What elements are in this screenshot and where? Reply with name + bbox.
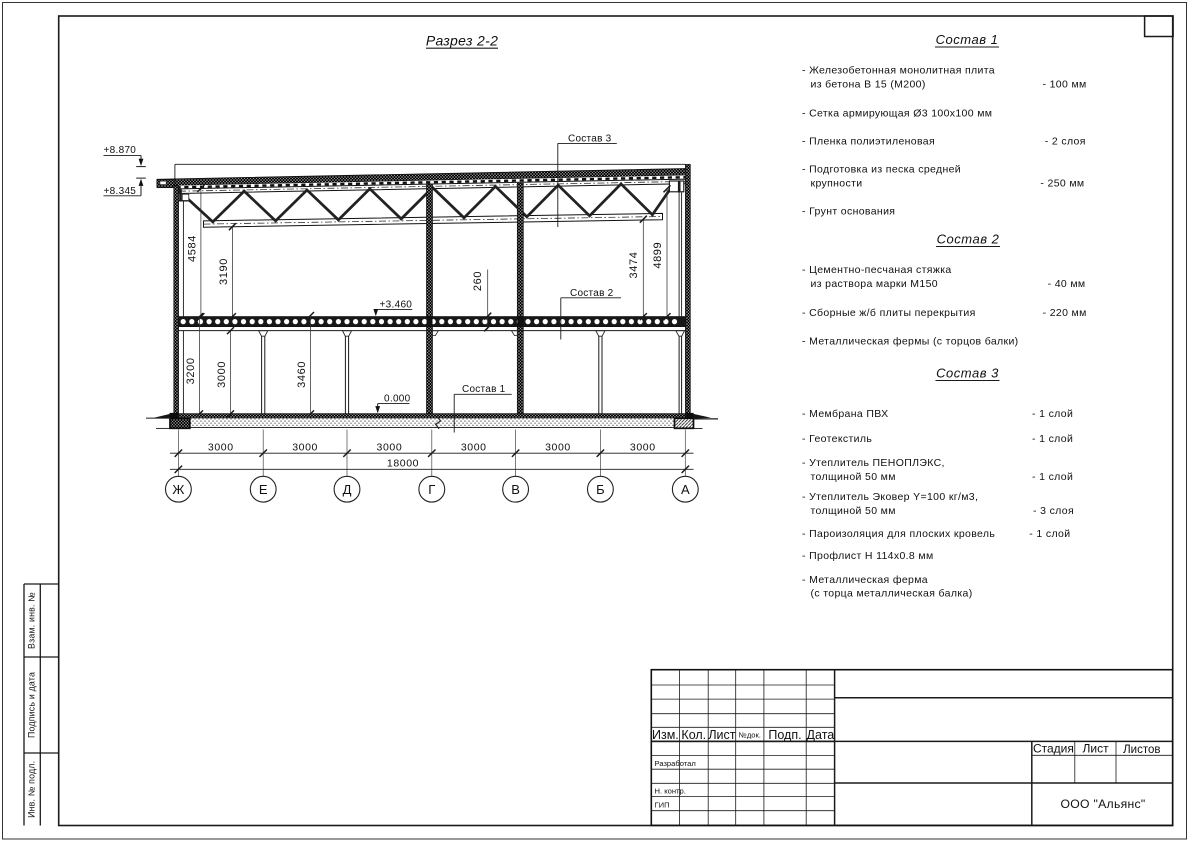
svg-text:18000: 18000 bbox=[387, 457, 419, 469]
svg-text:Подпись и дата: Подпись и дата bbox=[27, 672, 37, 738]
svg-text:- Металлическая фермы (с торцо: - Металлическая фермы (с торцов балки) bbox=[802, 336, 1019, 348]
svg-text:- Профлист Н 114х0.8 мм: - Профлист Н 114х0.8 мм bbox=[802, 550, 934, 562]
svg-text:3000: 3000 bbox=[377, 441, 403, 453]
svg-text:Состав 2: Состав 2 bbox=[937, 232, 1000, 247]
svg-text:- Цементно-песчаная стяжка: - Цементно-песчаная стяжка bbox=[802, 264, 952, 276]
svg-text:- Геотекстиль: - Геотекстиль bbox=[802, 433, 872, 445]
svg-text:- Грунт основания: - Грунт основания bbox=[802, 206, 895, 218]
svg-text:3474: 3474 bbox=[628, 252, 640, 279]
svg-text:- 1 слой: - 1 слой bbox=[1032, 408, 1073, 420]
svg-text:- Сетка армирующая Ø3 100х100: - Сетка армирующая Ø3 100х100 мм bbox=[802, 108, 992, 120]
svg-text:Взам. инв. №: Взам. инв. № bbox=[27, 592, 37, 649]
svg-text:толщиной 50 мм: толщиной 50 мм bbox=[811, 505, 896, 517]
svg-text:4899: 4899 bbox=[652, 242, 664, 269]
svg-text:- Мембрана ПВХ: - Мембрана ПВХ bbox=[802, 408, 888, 420]
svg-text:Разработал: Разработал bbox=[655, 759, 696, 768]
svg-text:- Утеплитель ПЕНОПЛЭКС,: - Утеплитель ПЕНОПЛЭКС, bbox=[802, 457, 945, 469]
svg-text:В: В bbox=[511, 482, 520, 497]
svg-text:+3.460: +3.460 bbox=[380, 300, 413, 311]
svg-text:Б: Б bbox=[596, 482, 605, 497]
svg-text:из бетона В 15 (М200): из бетона В 15 (М200) bbox=[811, 79, 926, 91]
svg-text:- 1 слой: - 1 слой bbox=[1029, 528, 1070, 540]
svg-text:Стадия: Стадия bbox=[1033, 742, 1074, 756]
svg-text:Лист: Лист bbox=[708, 728, 735, 742]
svg-text:Листов: Листов bbox=[1123, 744, 1160, 756]
svg-text:Кол.: Кол. bbox=[681, 728, 706, 742]
svg-text:ООО "Альянс": ООО "Альянс" bbox=[1060, 797, 1145, 811]
svg-text:(с торца металлическая балка): (с торца металлическая балка) bbox=[811, 588, 973, 600]
svg-text:- 100 мм: - 100 мм bbox=[1043, 79, 1087, 91]
svg-text:Состав 1: Состав 1 bbox=[462, 384, 506, 395]
svg-text:- Железобетонная монолитная п: - Железобетонная монолитная плита bbox=[802, 65, 995, 77]
svg-text:Изм.: Изм. bbox=[652, 728, 679, 742]
svg-text:- 2 слоя: - 2 слоя bbox=[1045, 135, 1086, 147]
svg-text:3000: 3000 bbox=[208, 441, 234, 453]
svg-text:3000: 3000 bbox=[461, 441, 487, 453]
svg-text:3000: 3000 bbox=[545, 441, 571, 453]
svg-text:3000: 3000 bbox=[216, 361, 228, 388]
svg-text:3200: 3200 bbox=[185, 357, 197, 384]
svg-text:Состав 3: Состав 3 bbox=[936, 366, 999, 381]
svg-text:- 3 слоя: - 3 слоя bbox=[1033, 505, 1074, 517]
svg-text:А: А bbox=[681, 482, 690, 497]
svg-text:- Сборные ж/б плиты перекрытия: - Сборные ж/б плиты перекрытия bbox=[802, 307, 976, 319]
svg-text:+8.870: +8.870 bbox=[104, 145, 137, 156]
svg-text:Состав 1: Состав 1 bbox=[936, 32, 999, 47]
svg-text:- Пароизоляция для плоских кро: - Пароизоляция для плоских кровель bbox=[802, 528, 995, 540]
svg-text:Инв. № подл.: Инв. № подл. bbox=[27, 761, 37, 818]
svg-text:0.000: 0.000 bbox=[384, 394, 411, 405]
svg-text:- Подготовка из песка средней: - Подготовка из песка средней bbox=[802, 164, 961, 176]
svg-text:- 1 слой: - 1 слой bbox=[1032, 433, 1073, 445]
svg-text:Лист: Лист bbox=[1083, 742, 1110, 756]
svg-text:из раствора марки М150: из раствора марки М150 bbox=[811, 278, 938, 290]
svg-text:- Металлическая ферма: - Металлическая ферма bbox=[802, 574, 928, 586]
svg-text:3000: 3000 bbox=[630, 441, 656, 453]
svg-text:260: 260 bbox=[472, 271, 484, 291]
svg-text:Н. контр.: Н. контр. bbox=[655, 787, 686, 796]
svg-text:3460: 3460 bbox=[296, 361, 308, 388]
svg-text:Е: Е bbox=[259, 482, 268, 497]
svg-text:- 1 слой: - 1 слой bbox=[1032, 471, 1073, 483]
svg-text:3000: 3000 bbox=[292, 441, 318, 453]
svg-text:Подп.: Подп. bbox=[768, 728, 801, 742]
svg-text:ГИП: ГИП bbox=[655, 801, 670, 810]
svg-text:Дата: Дата bbox=[807, 728, 835, 742]
svg-text:Разрез 2-2: Разрез 2-2 bbox=[426, 33, 498, 49]
svg-text:Д: Д bbox=[343, 482, 352, 497]
svg-text:- Утеплитель Эковер Y=100 кг/м: - Утеплитель Эковер Y=100 кг/м3, bbox=[802, 491, 978, 503]
svg-text:4584: 4584 bbox=[186, 235, 198, 262]
svg-text:3190: 3190 bbox=[218, 258, 230, 285]
svg-text:крупности: крупности bbox=[811, 178, 863, 190]
svg-text:толщиной 50 мм: толщиной 50 мм bbox=[811, 471, 896, 483]
svg-text:- 250 мм: - 250 мм bbox=[1040, 178, 1084, 190]
svg-text:- Пленка полиэтиленовая: - Пленка полиэтиленовая bbox=[802, 135, 935, 147]
svg-text:+8.345: +8.345 bbox=[104, 186, 137, 197]
svg-text:- 220 мм: - 220 мм bbox=[1043, 307, 1087, 319]
svg-text:№док.: №док. bbox=[739, 731, 761, 740]
svg-text:- 40 мм: - 40 мм bbox=[1048, 278, 1086, 290]
svg-text:Г: Г bbox=[428, 482, 435, 497]
svg-text:Ж: Ж bbox=[172, 482, 184, 497]
